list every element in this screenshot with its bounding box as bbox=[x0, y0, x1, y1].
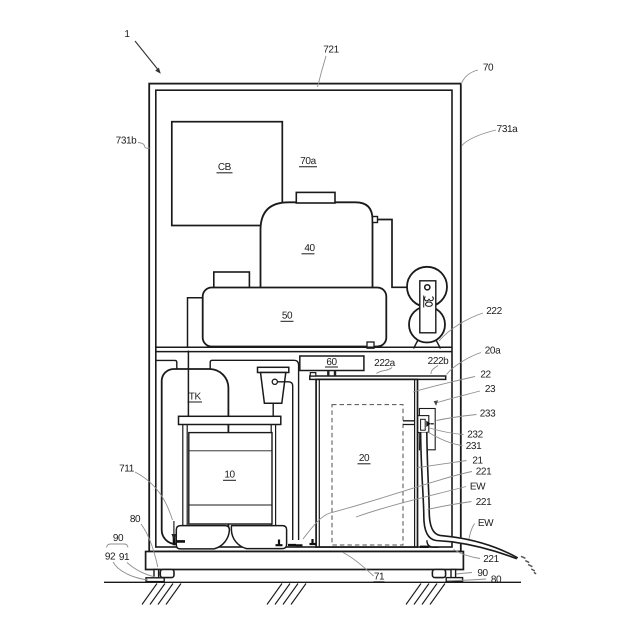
svg-text:1: 1 bbox=[124, 29, 130, 40]
svg-text:90: 90 bbox=[113, 533, 124, 544]
svg-text:70: 70 bbox=[483, 63, 494, 74]
svg-text:222b: 222b bbox=[428, 356, 449, 367]
svg-text:80: 80 bbox=[491, 575, 502, 586]
svg-text:80: 80 bbox=[130, 514, 141, 525]
svg-text:221: 221 bbox=[476, 497, 492, 508]
svg-text:222: 222 bbox=[486, 306, 502, 317]
svg-text:721: 721 bbox=[323, 45, 339, 56]
svg-text:EW: EW bbox=[478, 518, 494, 529]
svg-text:233: 233 bbox=[480, 409, 496, 420]
svg-text:20a: 20a bbox=[485, 346, 501, 357]
svg-text:22: 22 bbox=[480, 370, 491, 381]
svg-text:EW: EW bbox=[470, 482, 486, 493]
svg-text:232: 232 bbox=[467, 430, 483, 441]
svg-text:92: 92 bbox=[105, 552, 116, 563]
svg-text:10: 10 bbox=[224, 470, 235, 481]
svg-text:221: 221 bbox=[476, 467, 492, 478]
svg-text:TK: TK bbox=[189, 392, 202, 403]
svg-text:731a: 731a bbox=[497, 124, 518, 135]
svg-text:40: 40 bbox=[304, 243, 315, 254]
svg-text:CB: CB bbox=[218, 162, 232, 173]
svg-text:711: 711 bbox=[119, 464, 135, 475]
svg-text:91: 91 bbox=[119, 552, 130, 563]
svg-text:731b: 731b bbox=[116, 136, 137, 147]
svg-text:50: 50 bbox=[282, 311, 293, 322]
svg-text:222a: 222a bbox=[374, 358, 395, 369]
svg-text:23: 23 bbox=[485, 384, 496, 395]
svg-text:70a: 70a bbox=[300, 156, 316, 167]
svg-text:20: 20 bbox=[359, 453, 370, 464]
svg-text:60: 60 bbox=[326, 357, 337, 368]
svg-text:90: 90 bbox=[477, 568, 488, 579]
svg-text:21: 21 bbox=[472, 456, 483, 467]
svg-text:231: 231 bbox=[466, 441, 482, 452]
svg-text:71: 71 bbox=[374, 572, 385, 583]
svg-text:221: 221 bbox=[483, 554, 499, 565]
